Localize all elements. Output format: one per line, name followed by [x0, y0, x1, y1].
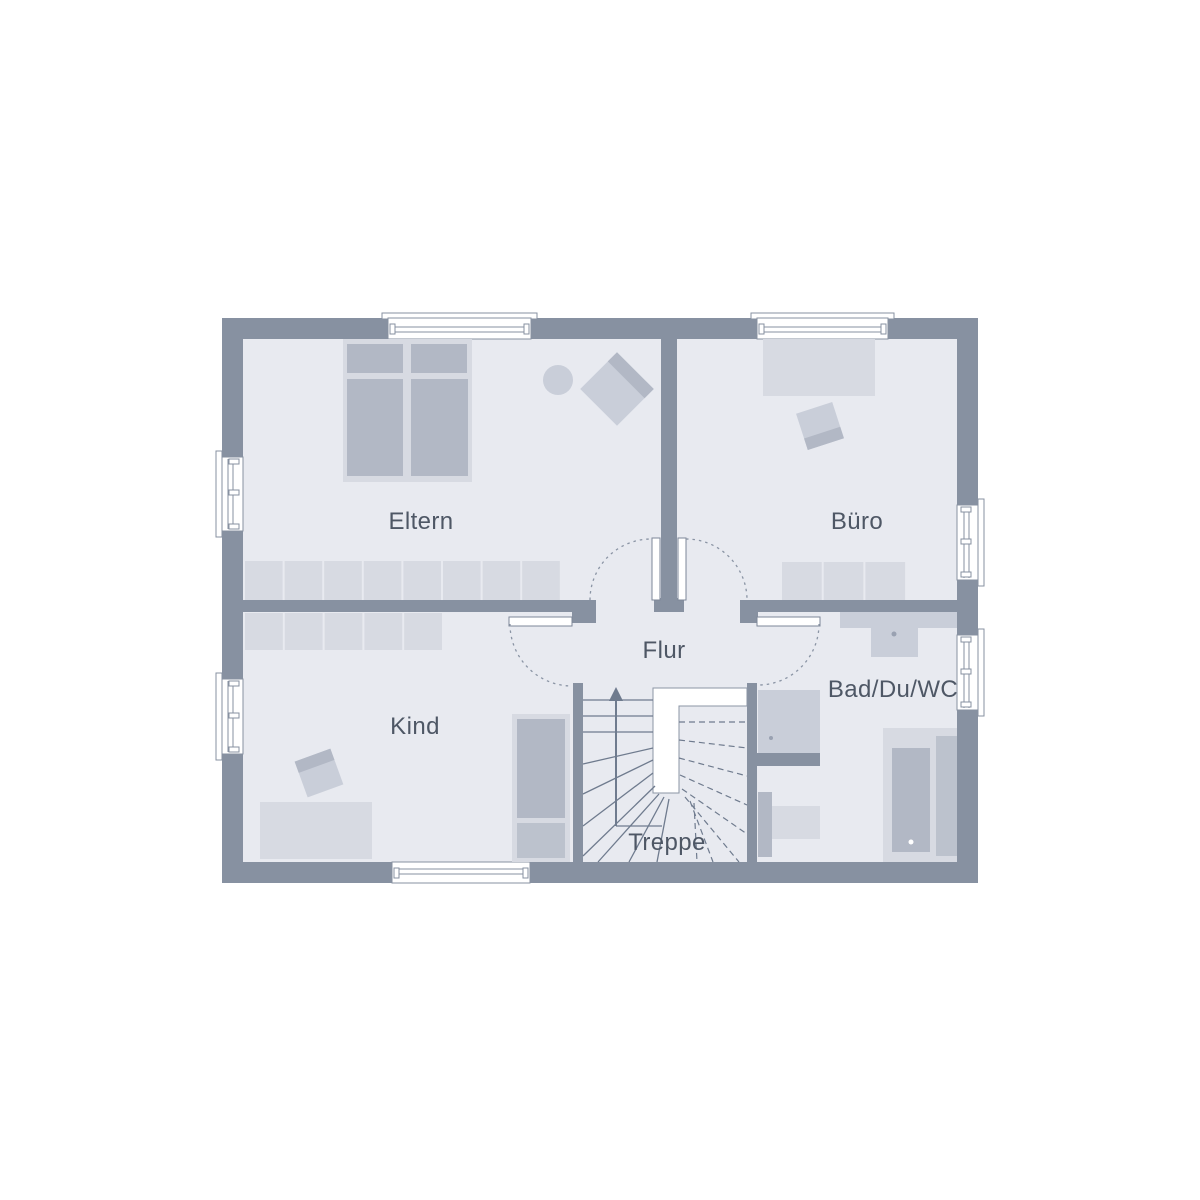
window-top-eltern [382, 313, 537, 339]
sideboard-buero [782, 562, 905, 600]
window-left-eltern [216, 451, 243, 537]
room-label-bad: Bad/Du/WC [828, 676, 958, 704]
washbasin [871, 628, 918, 657]
mattress [347, 379, 403, 476]
double-bed [343, 339, 472, 482]
room-label-buero: Büro [831, 508, 883, 536]
stool [543, 365, 573, 395]
door-eltern [652, 538, 660, 600]
wall-stair-right [747, 683, 757, 862]
window-top-buero [751, 313, 894, 339]
room-label-flur: Flur [643, 637, 686, 665]
wall-stair-left [573, 683, 583, 862]
wall-jamb-right [740, 600, 758, 623]
mattress [411, 379, 468, 476]
wall-jamb-left [572, 600, 596, 623]
floor-plan: Eltern Büro Kind Flur Bad/Du/WC Treppe [0, 0, 1200, 1200]
window-right-bad [957, 629, 984, 716]
window-left-kind [216, 673, 243, 760]
room-label-kind: Kind [390, 713, 440, 741]
desk [260, 802, 372, 859]
door-buero [678, 538, 686, 600]
pillow [517, 823, 565, 858]
wall-eltern-kind [243, 600, 572, 612]
door-kind [509, 617, 572, 626]
toilet-bowl [772, 806, 820, 839]
room-label-treppe: Treppe [628, 829, 706, 857]
door-bad [757, 617, 820, 626]
wall-eltern-buero [661, 339, 677, 598]
mattress [517, 719, 565, 818]
toilet-tank [758, 792, 772, 857]
bathtub [883, 728, 957, 862]
wall-buero-bad [758, 600, 957, 612]
window-right-buero [957, 499, 984, 586]
pillow [347, 344, 403, 373]
shower [758, 690, 820, 753]
wall-bath-stub [757, 753, 820, 766]
bath-counter [840, 612, 957, 628]
floor-plan-drawing [0, 0, 1200, 1200]
window-bottom-kind [392, 862, 530, 883]
desk [763, 339, 875, 396]
wardrobe-kind [245, 613, 442, 650]
room-label-eltern: Eltern [388, 508, 453, 536]
single-bed [512, 714, 570, 862]
pillow [411, 344, 467, 373]
